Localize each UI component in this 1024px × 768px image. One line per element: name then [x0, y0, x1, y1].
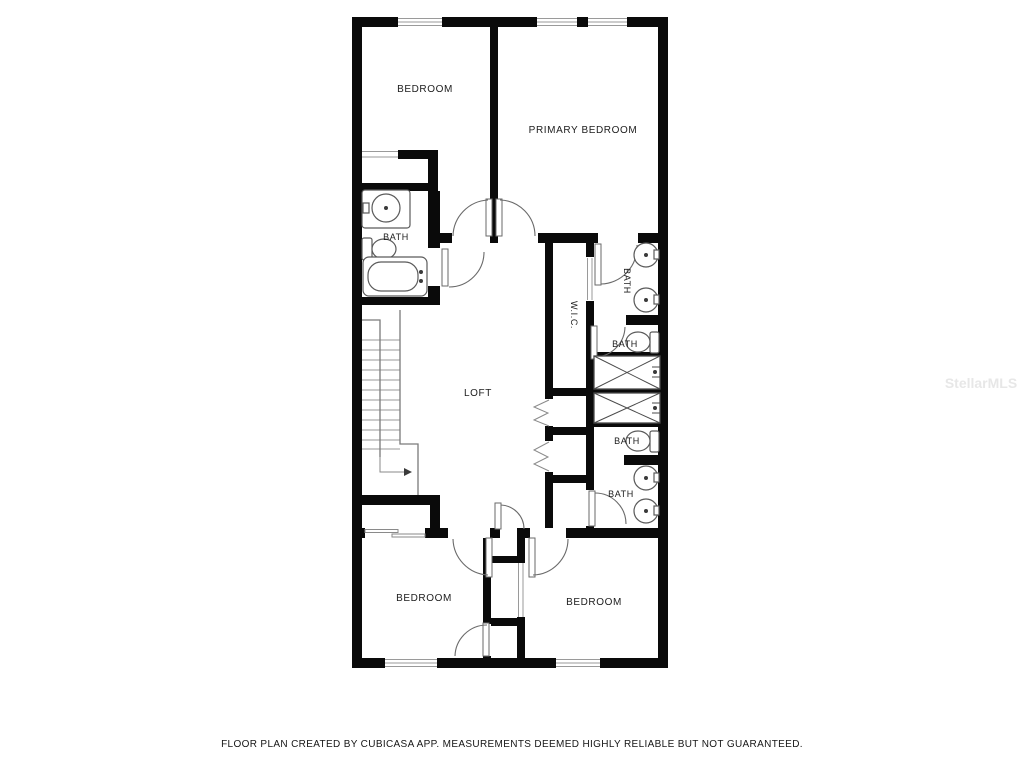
label-wic: W.I.C.	[569, 301, 579, 329]
floor-plan-page: BEDROOM PRIMARY BEDROOM BATH BATH W.I.C.…	[0, 0, 1024, 768]
label-primary-bedroom: PRIMARY BEDROOM	[529, 125, 638, 136]
door-closet-central-top	[495, 503, 524, 529]
label-bath-right-top: BATH	[622, 268, 632, 294]
door-closet-central-side	[455, 623, 489, 656]
stair-rail	[400, 310, 418, 495]
sink-bath-right-top-2	[634, 288, 659, 312]
floor-plan-drawing: BEDROOM PRIMARY BEDROOM BATH BATH W.I.C.…	[0, 0, 1024, 768]
label-bedroom-bottom-left: BEDROOM	[396, 593, 452, 604]
staircase	[362, 310, 418, 495]
label-bath-right-mid1: BATH	[612, 339, 638, 349]
door-bedroom-top-left	[453, 199, 492, 236]
sink-bath-right-bottom-2	[634, 499, 659, 523]
bathtub-bath-left	[363, 257, 427, 296]
door-bedroom-top-right	[496, 199, 535, 236]
label-bath-left: BATH	[383, 232, 409, 242]
door-bedroom-bottom-left	[453, 538, 492, 577]
doors	[442, 199, 637, 656]
footer-disclaimer: FLOOR PLAN CREATED BY CUBICASA APP. MEAS…	[221, 739, 803, 750]
shower-lower	[594, 393, 660, 423]
label-bath-right-bottom: BATH	[608, 489, 634, 499]
shower-upper	[594, 356, 660, 389]
label-bedroom-bottom-right: BEDROOM	[566, 597, 622, 608]
stair-inner-rail	[362, 320, 380, 457]
label-bedroom-top-left: BEDROOM	[397, 84, 453, 95]
label-bath-right-mid2: BATH	[614, 436, 640, 446]
sink-bath-right-top-1	[634, 243, 659, 267]
door-bath-left	[442, 249, 484, 287]
label-loft: LOFT	[464, 388, 492, 399]
sink-bath-right-bottom-1	[634, 466, 659, 490]
mls-watermark: StellarMLS	[945, 375, 1017, 391]
sink-bath-left	[362, 190, 410, 228]
stair-direction-arrow	[380, 457, 412, 476]
door-bedroom-bottom-right	[529, 538, 568, 577]
